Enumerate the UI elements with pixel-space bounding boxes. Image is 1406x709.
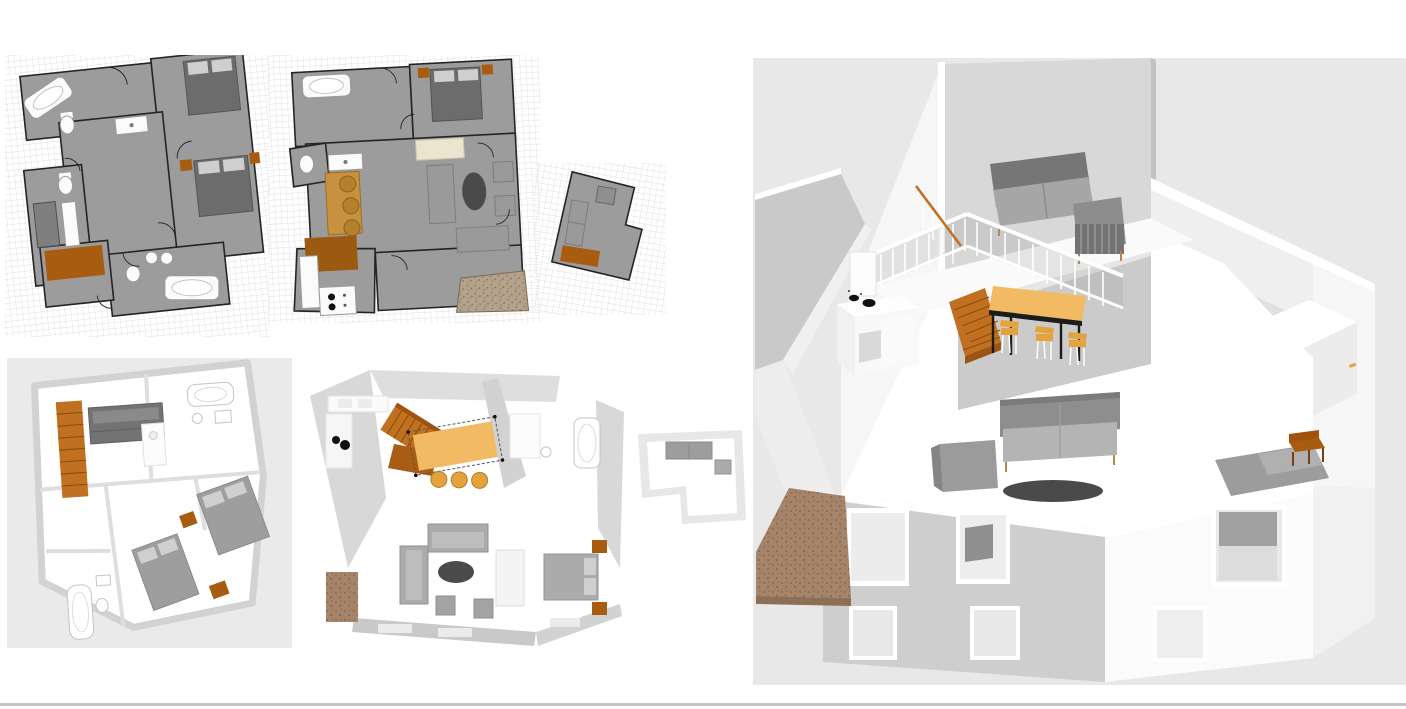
- chair-3: [1068, 332, 1087, 366]
- sink: [215, 410, 232, 423]
- side-table: [596, 186, 616, 205]
- window-bottom-edge: [0, 703, 1406, 706]
- sofa: [666, 442, 712, 459]
- closet: [496, 550, 524, 606]
- panel-plan3d-annex: [622, 418, 762, 546]
- nightstand-2: [592, 602, 607, 615]
- burner-1: [849, 295, 859, 301]
- bed-through-window: [1219, 512, 1277, 546]
- mezzanine-armchair: [1073, 197, 1126, 264]
- panel-plan2d-upper: [5, 55, 270, 337]
- nightstand-1: [592, 540, 607, 553]
- bathroom: [510, 414, 600, 468]
- terrace: [326, 572, 358, 622]
- loveseat: [456, 226, 509, 253]
- side-table: [715, 460, 731, 474]
- armchair-1: [493, 161, 514, 182]
- orange-rug: [44, 245, 105, 281]
- armchair-2: [495, 195, 516, 216]
- sink-2: [96, 575, 111, 586]
- panel-view3d: [753, 58, 1406, 685]
- burner-2: [863, 299, 876, 307]
- ottoman-1: [436, 596, 455, 615]
- window-3: [849, 606, 897, 660]
- stool-2: [450, 471, 469, 490]
- window-1: [847, 508, 909, 586]
- ottoman-2: [474, 599, 493, 618]
- open-shelf: [859, 330, 881, 363]
- burner-2: [340, 440, 350, 450]
- sofa: [427, 164, 456, 223]
- toilet-2: [96, 598, 109, 613]
- panel-plan3d-ground: [298, 356, 628, 660]
- bathtub-2: [165, 276, 219, 300]
- oval-rug: [438, 561, 474, 583]
- plan2d-upper-scene: [5, 55, 270, 337]
- living-room: [400, 524, 493, 618]
- panel-plan2d-ground: [268, 55, 540, 323]
- shower-closet: [33, 202, 59, 248]
- stool-3: [470, 471, 489, 490]
- burner-1: [332, 436, 340, 444]
- window-5: [1211, 504, 1287, 588]
- window-4: [970, 606, 1020, 660]
- dishwasher: [881, 314, 913, 367]
- bedroom: [544, 540, 607, 615]
- double-bed-1: [183, 56, 240, 115]
- toilet: [192, 413, 203, 424]
- round-rug: [1003, 480, 1103, 502]
- dining-set: [325, 171, 362, 237]
- window-6: [1153, 606, 1207, 662]
- floorplan-collage-canvas: [0, 0, 1406, 709]
- panel-plan3d-upper: [7, 358, 292, 648]
- toilet: [541, 447, 551, 457]
- washer: [141, 423, 166, 466]
- plan2d-annex-scene: [534, 163, 666, 315]
- living-armchair: [931, 440, 998, 492]
- terrace: [455, 271, 529, 315]
- bathtub: [187, 382, 234, 407]
- bathtub: [302, 74, 351, 98]
- panel-plan2d-annex: [534, 163, 666, 315]
- armchair-through-window: [965, 524, 993, 562]
- wardrobe: [415, 138, 464, 160]
- plan2d-ground-scene: [268, 55, 540, 323]
- toilet: [299, 155, 314, 174]
- window-2: [956, 510, 1010, 584]
- chair-2: [1035, 326, 1054, 360]
- chair-1: [1000, 320, 1019, 354]
- tall-cabinet: [850, 252, 876, 296]
